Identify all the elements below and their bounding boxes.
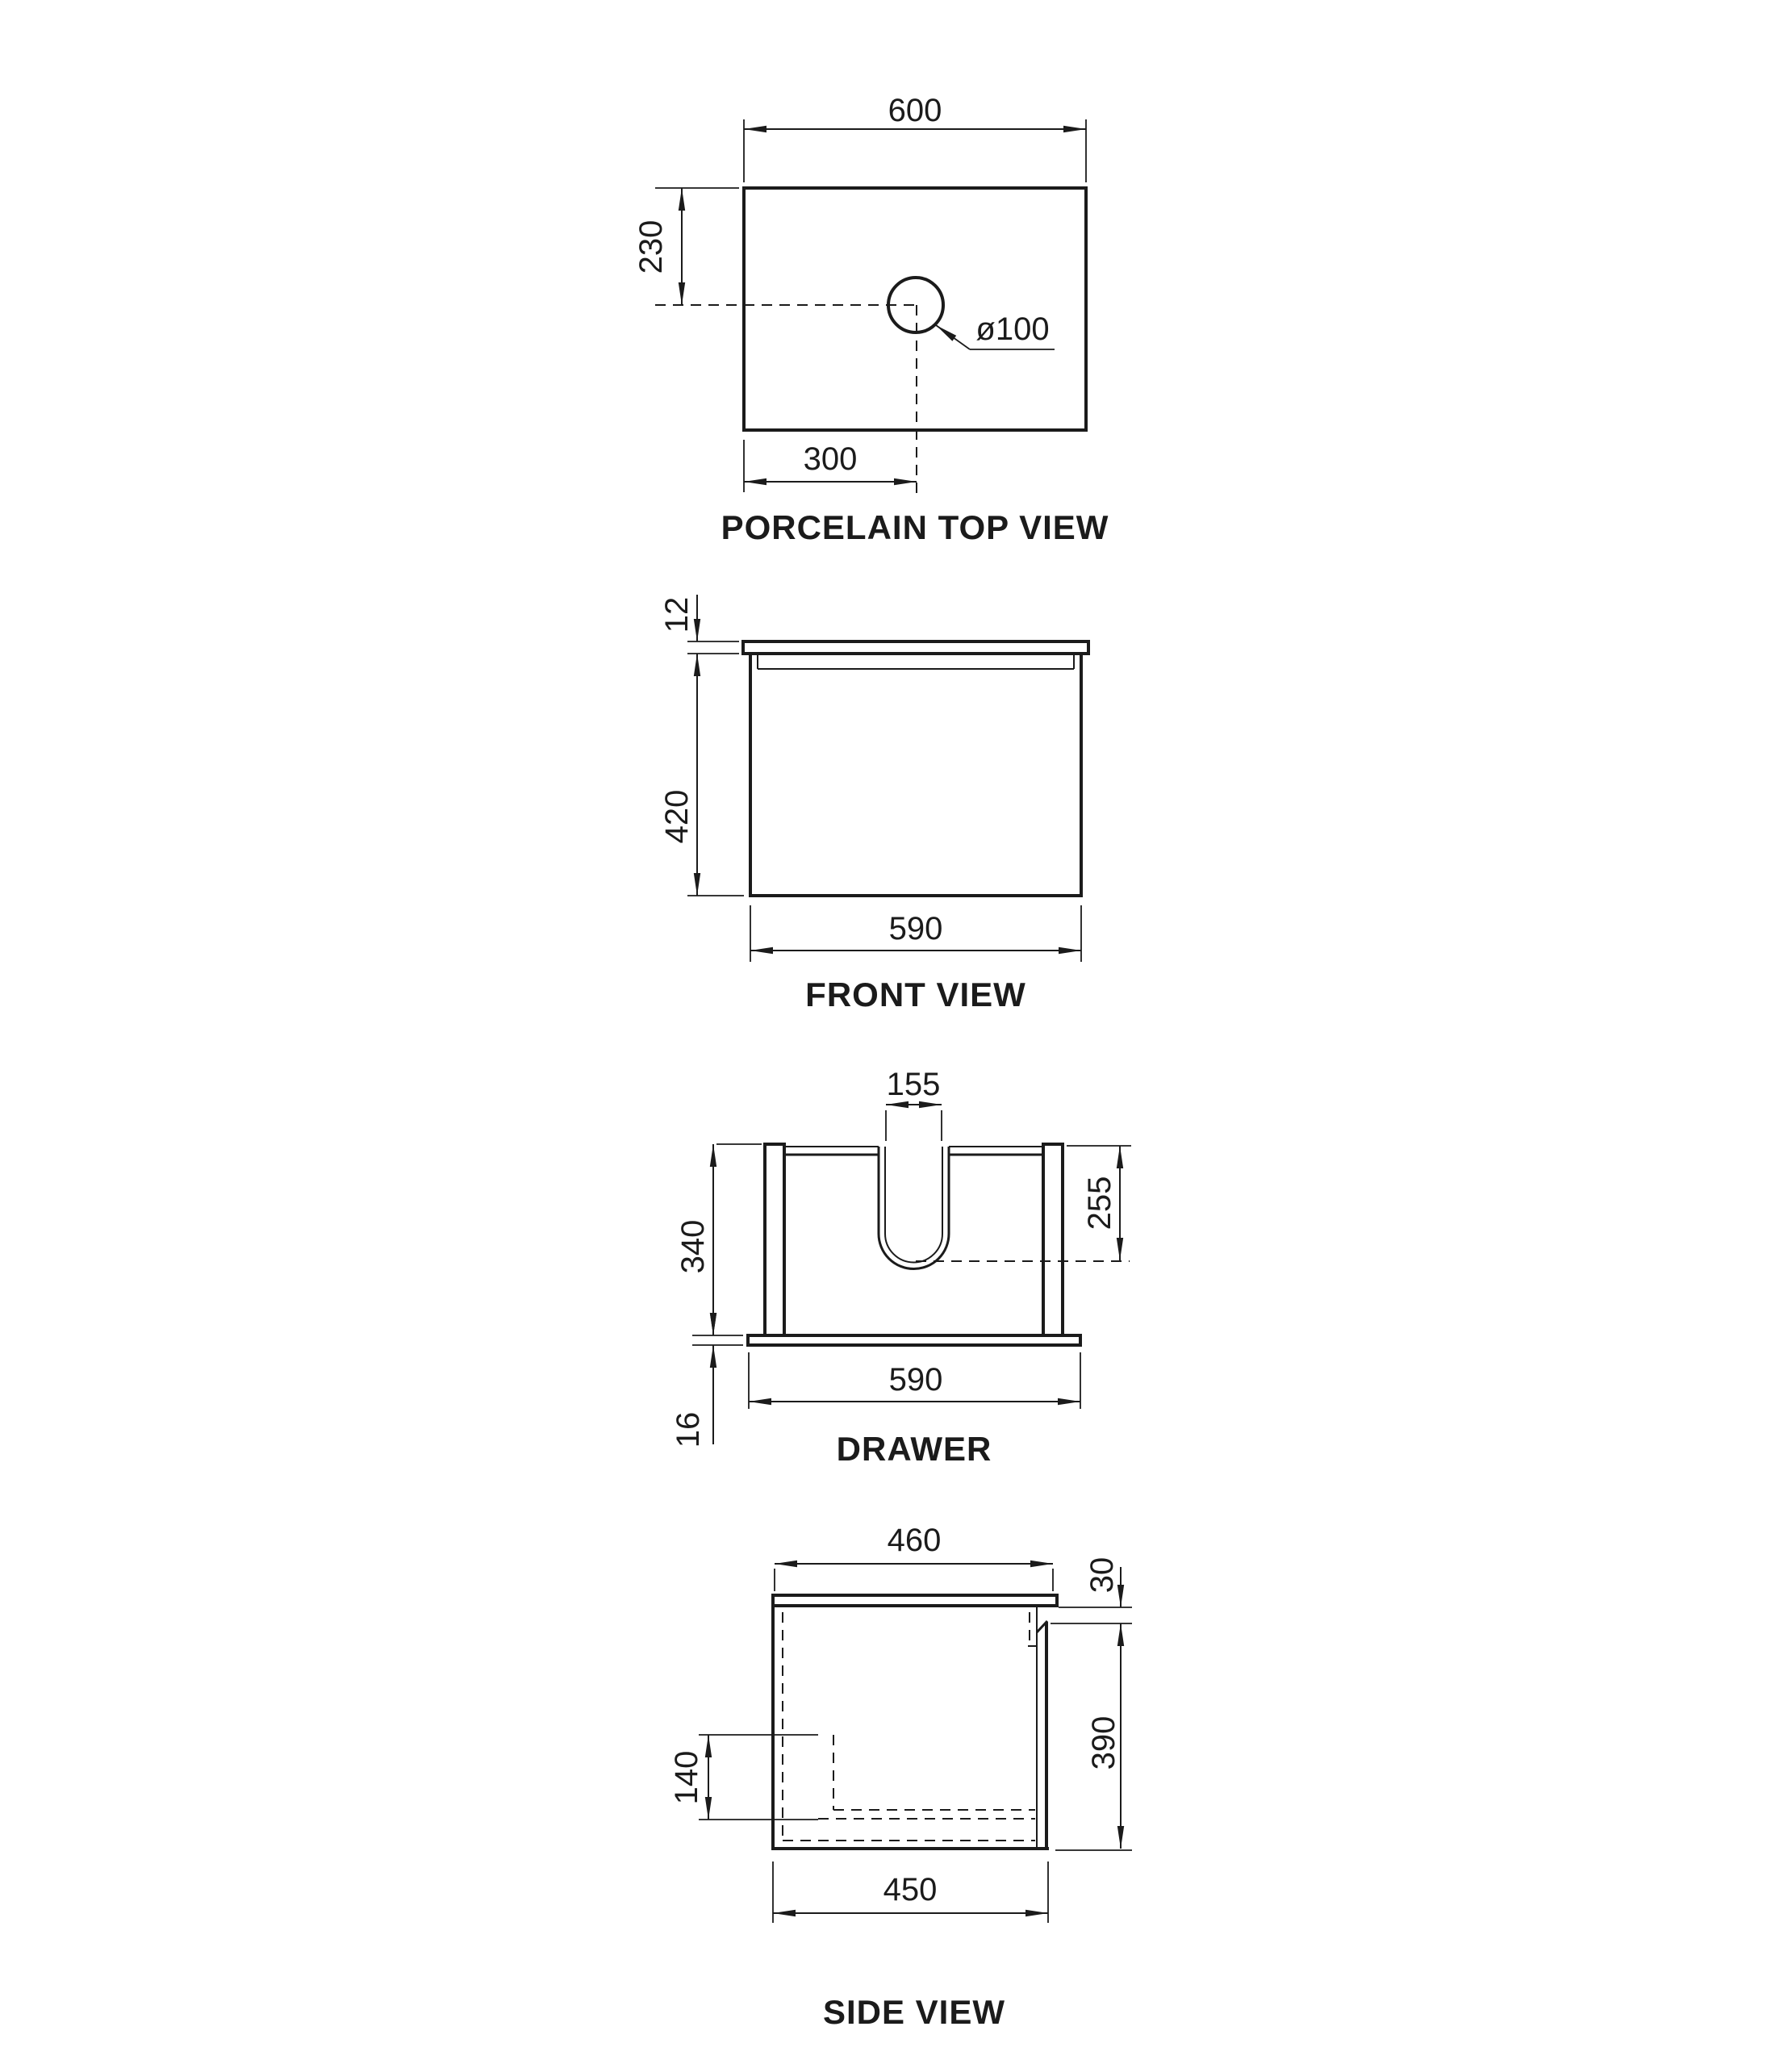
dim-top-width-600: 600 — [744, 93, 1086, 182]
dim-top-depth-460: 460 — [775, 1523, 1053, 1591]
plumbing-cutout-inner — [885, 1147, 942, 1263]
countertop-slab — [743, 641, 1088, 654]
view-title-porcelain-top: PORCELAIN TOP VIEW — [721, 508, 1109, 546]
plumbing-cutout-outer — [879, 1147, 949, 1269]
dim-label-390: 390 — [1086, 1716, 1122, 1770]
dim-body-height-390: 390 — [1055, 1623, 1132, 1850]
leader-line-diagonal — [936, 325, 970, 349]
dim-label-600: 600 — [888, 93, 942, 128]
drawer-base-plate — [748, 1335, 1080, 1345]
dim-drawer-height-340: 340 — [675, 1144, 762, 1335]
drawer-side-rail-right — [1043, 1144, 1063, 1335]
vanity-dimension-drawing: 600 230 ø100 300 PORCELAIN TOP VIEW — [0, 0, 1792, 2060]
view-side: 460 30 390 140 450 SIDE VIEW — [669, 1523, 1132, 2031]
dim-label-155: 155 — [887, 1067, 941, 1102]
dim-label-drawer-590: 590 — [889, 1362, 943, 1398]
cabinet-outline — [750, 654, 1081, 896]
technical-drawing-canvas: 600 230 ø100 300 PORCELAIN TOP VIEW — [0, 0, 1792, 2060]
dim-drawer-width-590: 590 — [749, 1352, 1080, 1409]
dim-hole-offset-300: 300 — [744, 440, 917, 492]
dim-cabinet-height-420: 420 — [659, 654, 744, 896]
dim-label-hole-diameter: ø100 — [975, 311, 1049, 347]
dim-cabinet-width-590: 590 — [750, 905, 1081, 962]
view-drawer: 155 340 16 255 590 DRAWER — [670, 1067, 1131, 1468]
view-title-front: FRONT VIEW — [805, 976, 1026, 1013]
dim-cutout-width-155: 155 — [886, 1067, 942, 1141]
dim-label-230: 230 — [633, 220, 669, 274]
dim-top-thickness-12: 12 — [659, 595, 739, 654]
dim-base-thickness-16: 16 — [670, 1293, 743, 1448]
dim-label-140: 140 — [669, 1751, 704, 1805]
dim-label-450: 450 — [883, 1872, 938, 1907]
view-front: 12 420 590 FRONT VIEW — [659, 595, 1088, 1013]
dim-inner-height-140: 140 — [669, 1735, 818, 1820]
countertop-slab-side — [773, 1595, 1057, 1606]
view-title-side: SIDE VIEW — [823, 1993, 1005, 2031]
view-porcelain-top: 600 230 ø100 300 PORCELAIN TOP VIEW — [633, 93, 1109, 546]
dim-label-30: 30 — [1084, 1557, 1120, 1594]
dim-label-16: 16 — [670, 1412, 706, 1448]
dim-hole-offset-230: 230 — [633, 188, 739, 305]
dim-label-255: 255 — [1082, 1176, 1117, 1231]
dim-label-300: 300 — [804, 441, 858, 477]
dim-bottom-depth-450: 450 — [773, 1862, 1048, 1923]
leader-hole-diameter: ø100 — [936, 311, 1055, 349]
dim-label-460: 460 — [888, 1523, 942, 1558]
view-title-drawer: DRAWER — [837, 1430, 992, 1468]
dim-label-340: 340 — [675, 1220, 711, 1274]
dim-label-420: 420 — [659, 790, 695, 844]
drawer-side-rail-left — [765, 1144, 784, 1335]
dim-label-12: 12 — [659, 597, 695, 633]
dim-label-590: 590 — [889, 911, 943, 946]
porcelain-top-outline — [744, 188, 1086, 430]
dim-reveal-30: 30 — [1051, 1557, 1132, 1623]
